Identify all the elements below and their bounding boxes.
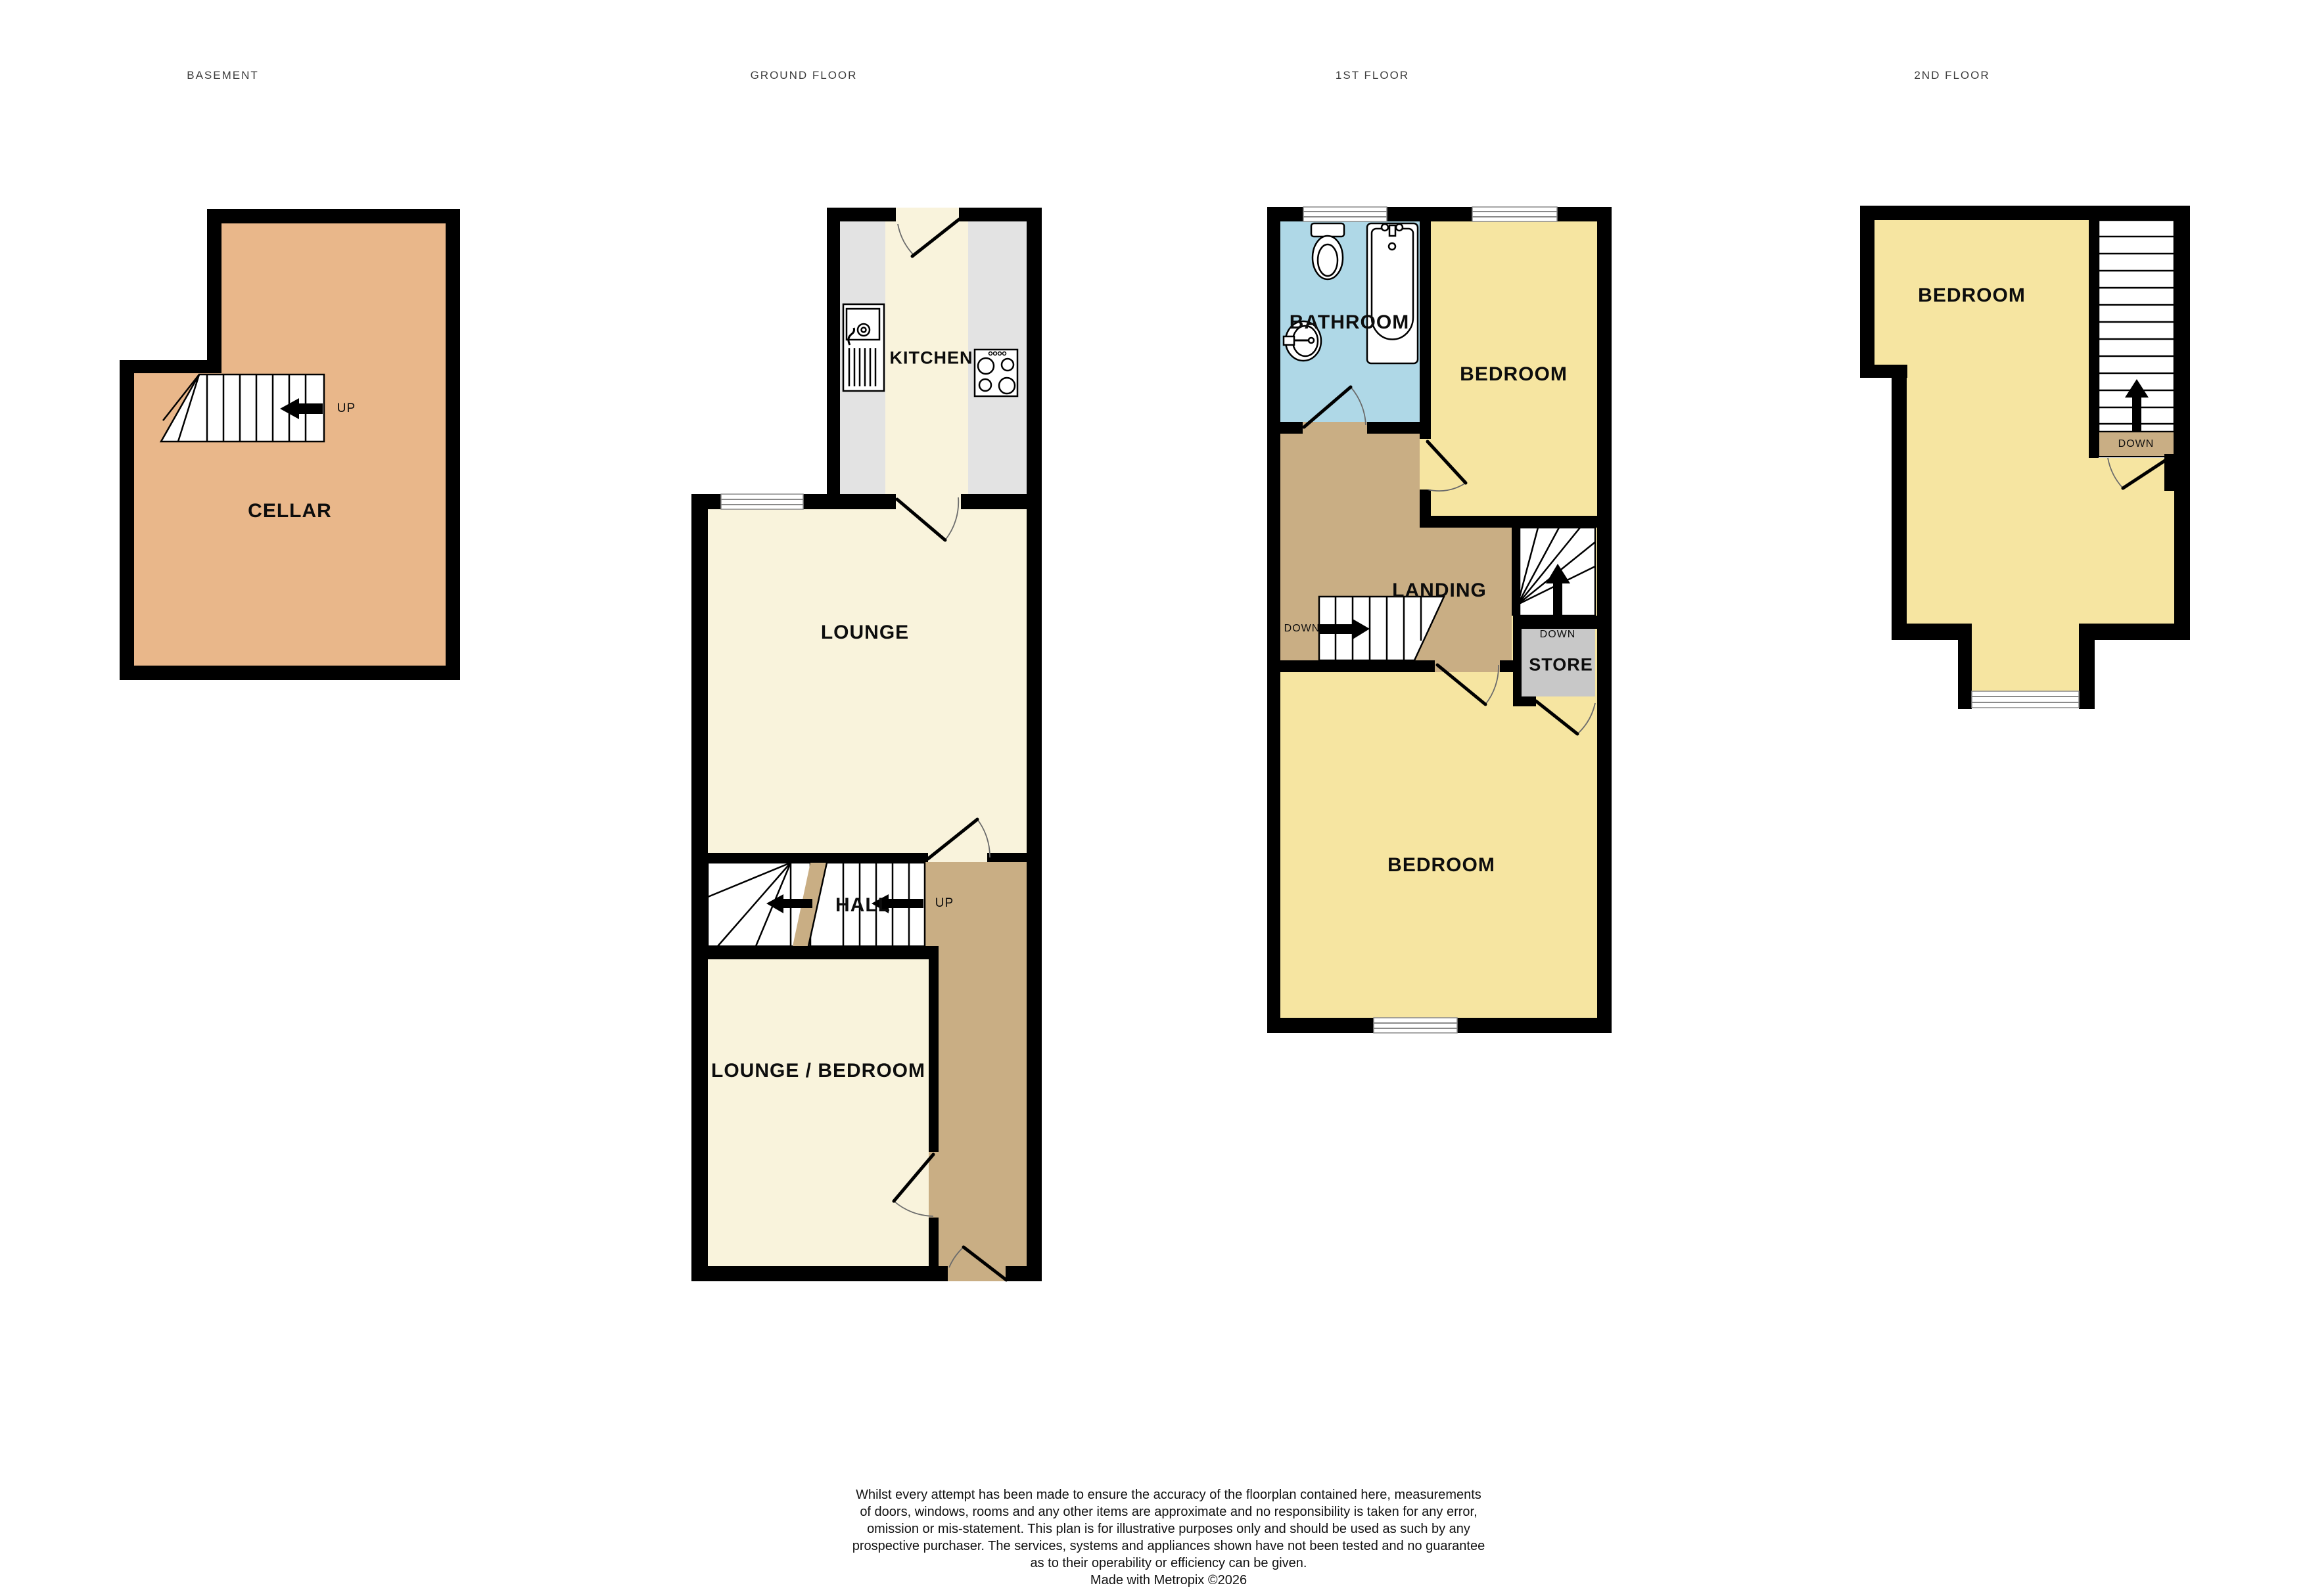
hall-up-label: UP <box>935 896 954 911</box>
basement-title: BASEMENT <box>187 69 259 82</box>
disclaimer-line: Whilst every attempt has been made to en… <box>709 1486 1629 1503</box>
kitchen-label: KITCHEN <box>890 348 973 369</box>
bathtub <box>1367 223 1418 363</box>
store-label: STORE <box>1529 655 1593 675</box>
second-down-label: DOWN <box>2118 438 2154 450</box>
winder-stairs-up <box>1518 528 1595 616</box>
kitchen-hob <box>975 350 1017 396</box>
lounge-window <box>721 494 803 509</box>
floorplan-page: { "document_type": "floorplan", "floor_t… <box>0 0 2305 1596</box>
cellar-label: CELLAR <box>248 500 332 522</box>
first-floor-title: 1ST FLOOR <box>1336 69 1409 82</box>
bedroom-first-rear-label: BEDROOM <box>1387 854 1495 877</box>
second-floor-stairs <box>2099 220 2174 457</box>
disclaimer-line: as to their operability or efficiency ca… <box>709 1555 1629 1572</box>
basement-plan <box>120 209 460 680</box>
landing-down-label: DOWN <box>1284 623 1320 635</box>
kitchen-sink <box>843 304 884 391</box>
disclaimer-line: of doors, windows, rooms and any other i… <box>709 1503 1629 1520</box>
basement-floor-fills <box>134 223 446 666</box>
hall-label: HALL <box>835 894 891 917</box>
lounge-label: LOUNGE <box>821 622 909 644</box>
bedroom-first-front-label: BEDROOM <box>1460 363 1568 386</box>
lounge-bedroom-label: LOUNGE / BEDROOM <box>711 1060 925 1082</box>
disclaimer-line: omission or mis-statement. This plan is … <box>709 1520 1629 1538</box>
bedroom-second-label: BEDROOM <box>1918 285 2026 307</box>
disclaimer-text: Whilst every attempt has been made to en… <box>709 1486 1629 1589</box>
bathroom-label: BATHROOM <box>1290 311 1409 334</box>
floorplan-canvas <box>0 0 2305 1596</box>
metropix-credit: Made with Metropix ©2026 <box>709 1572 1629 1589</box>
toilet <box>1311 223 1344 279</box>
landing-label: LANDING <box>1392 580 1487 602</box>
cellar-up-label: UP <box>337 401 356 416</box>
second-floor-window <box>1972 691 2079 708</box>
ground-floor-title: GROUND FLOOR <box>751 69 858 82</box>
disclaimer-line: prospective purchaser. The services, sys… <box>709 1538 1629 1555</box>
store-down-label: DOWN <box>1540 629 1576 641</box>
hall-stairs <box>708 863 925 946</box>
ground-floor-plan <box>691 208 1042 1281</box>
second-floor-title: 2ND FLOOR <box>1914 69 1990 82</box>
second-floor-plan <box>1860 206 2190 709</box>
